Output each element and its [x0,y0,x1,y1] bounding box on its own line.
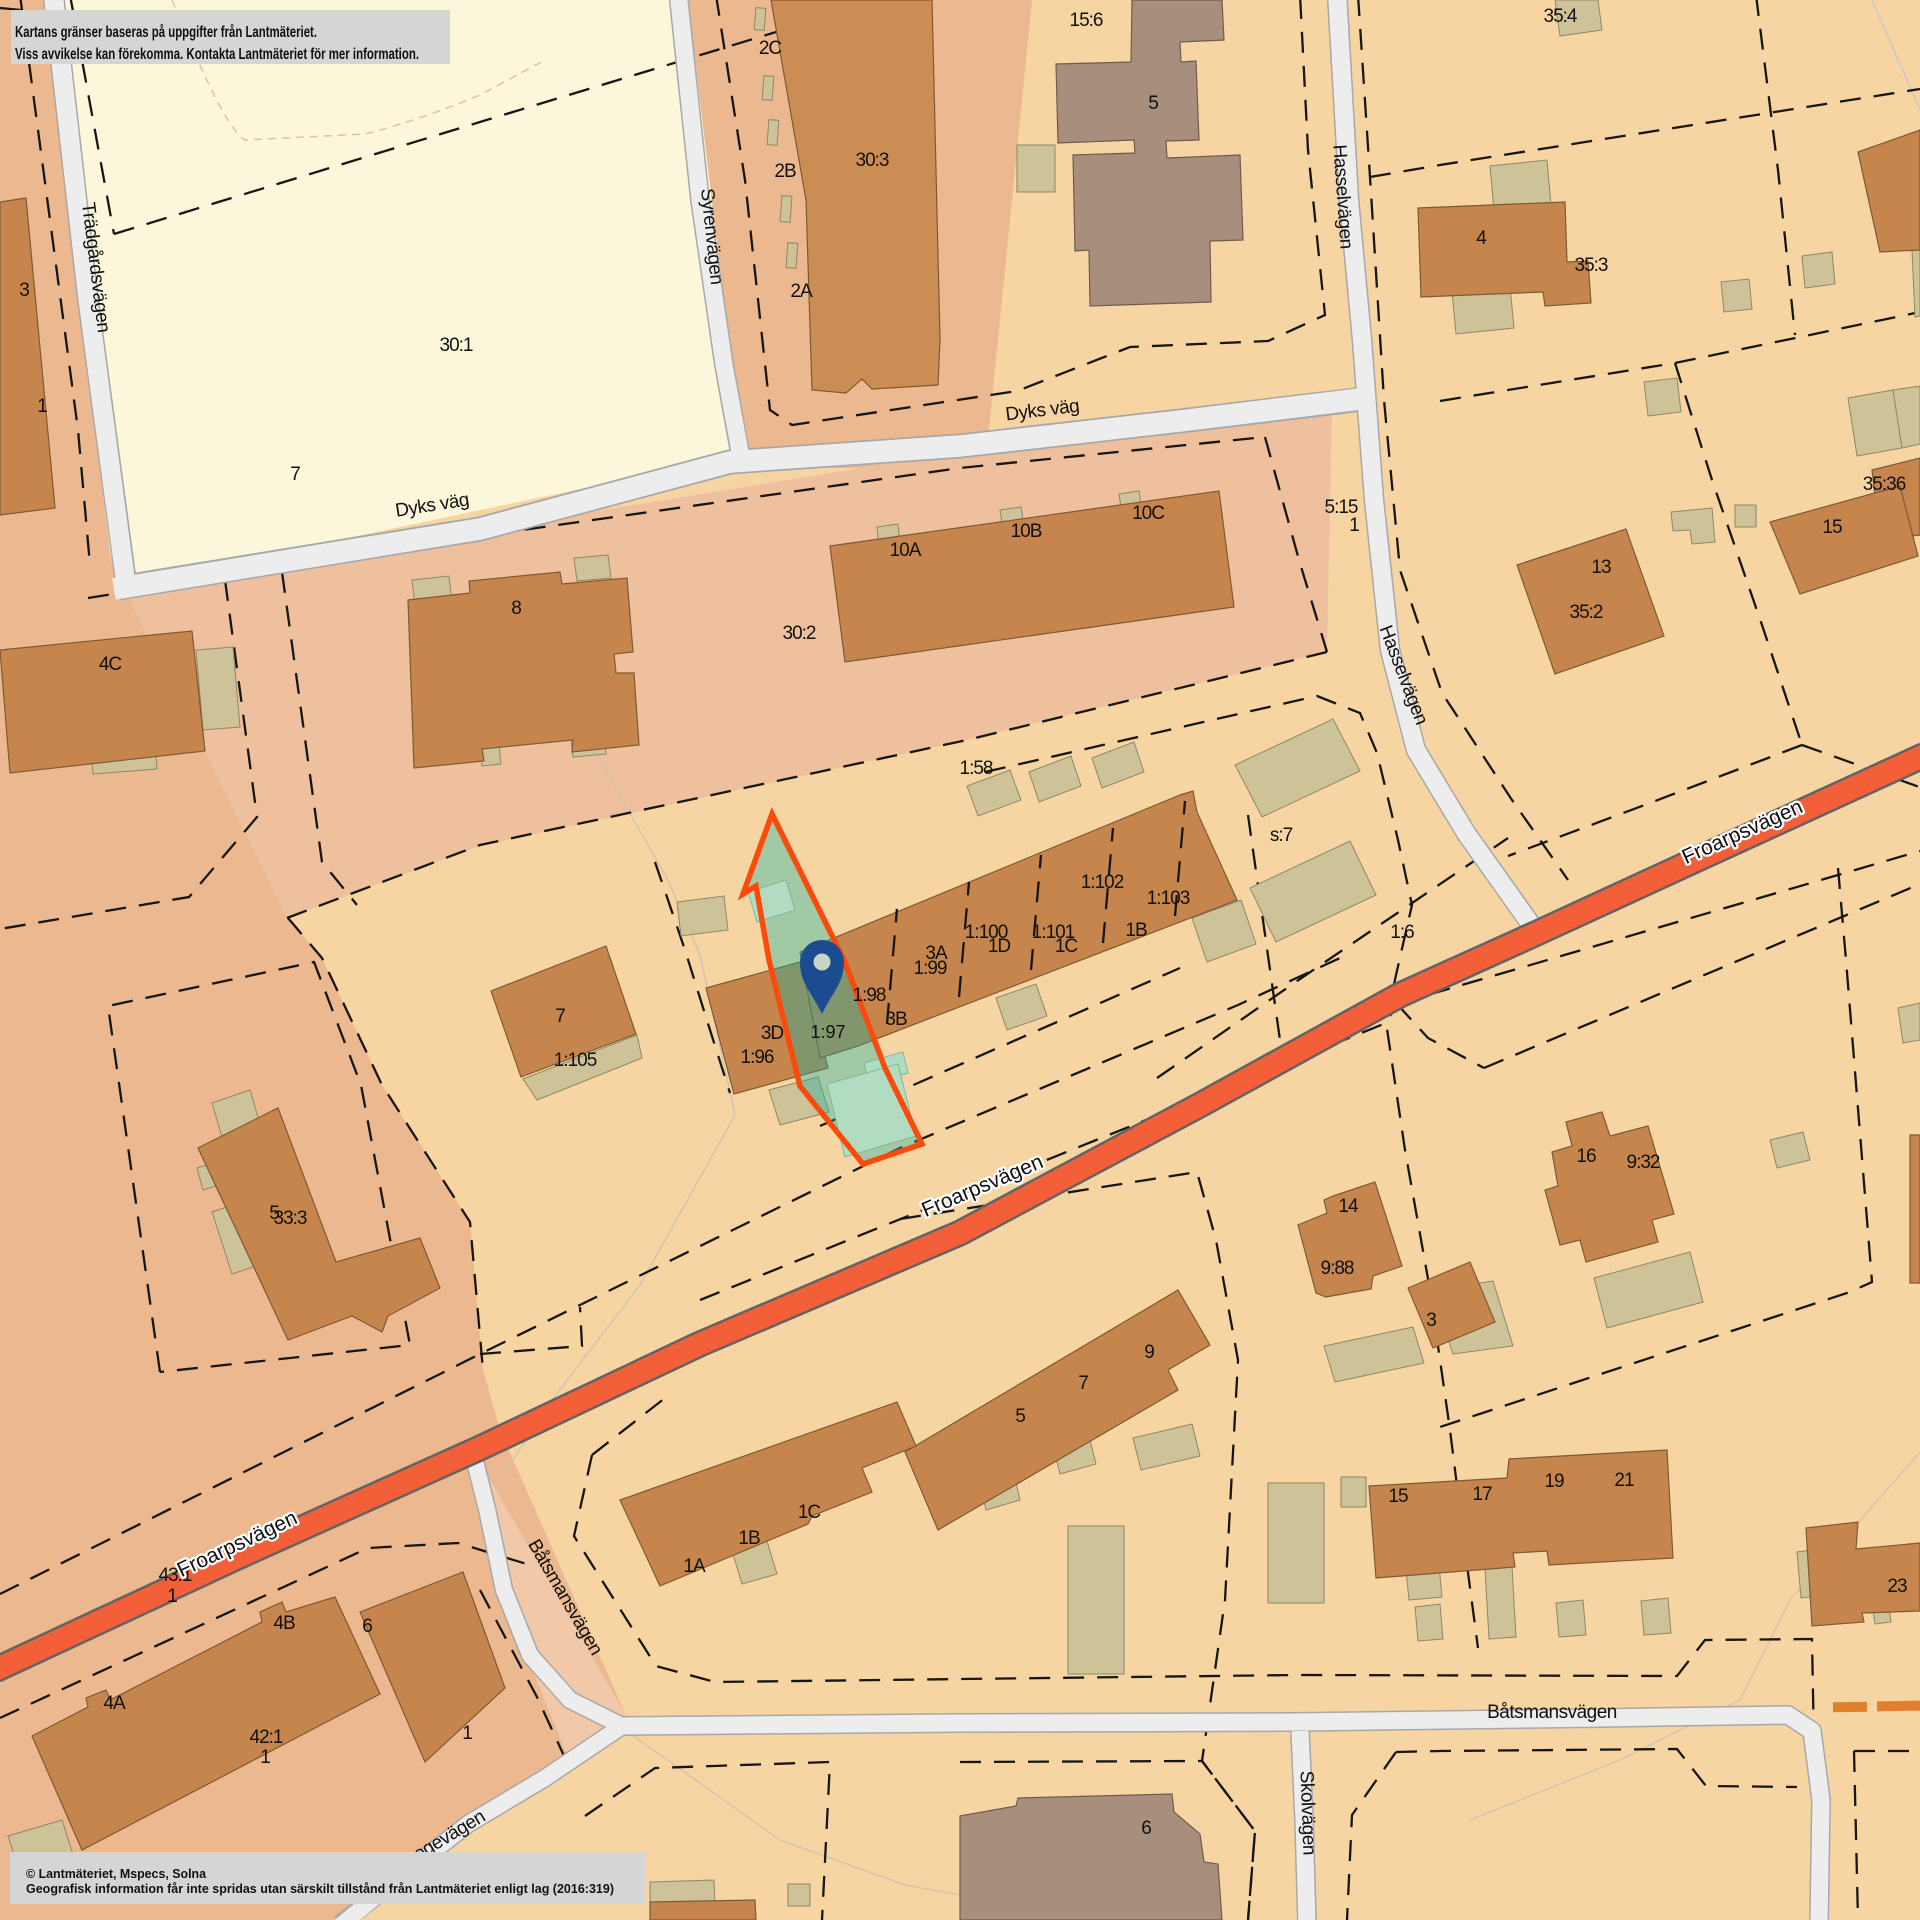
svg-text:10B: 10B [1011,521,1042,542]
svg-text:Viss avvikelse kan förekomma.: Viss avvikelse kan förekomma. Kontakta L… [15,46,419,63]
svg-text:3: 3 [1426,1310,1436,1331]
svg-text:15: 15 [1388,1486,1408,1507]
svg-text:21: 21 [1614,1470,1634,1491]
svg-text:4B: 4B [273,1613,295,1634]
svg-text:9:88: 9:88 [1321,1258,1354,1279]
svg-text:19: 19 [1544,1471,1564,1492]
svg-text:10C: 10C [1132,503,1164,524]
svg-text:35:36: 35:36 [1863,474,1906,495]
svg-text:1:58: 1:58 [960,758,993,779]
svg-text:1B: 1B [1125,920,1147,941]
svg-text:3D: 3D [761,1023,784,1044]
svg-text:1:103: 1:103 [1147,888,1190,909]
svg-text:3B: 3B [885,1009,907,1030]
svg-text:1:97: 1:97 [810,1022,845,1042]
svg-text:15: 15 [1822,517,1842,538]
svg-text:Kartans gränser baseras på upp: Kartans gränser baseras på uppgifter frå… [15,23,317,41]
svg-text:35:4: 35:4 [1544,6,1578,27]
svg-text:30:1: 30:1 [440,335,473,356]
svg-text:1:96: 1:96 [741,1047,774,1068]
svg-text:1:102: 1:102 [1081,872,1124,893]
svg-text:16: 16 [1576,1146,1596,1167]
svg-text:1D: 1D [988,936,1011,957]
svg-text:4C: 4C [99,654,122,675]
svg-text:1A: 1A [683,1556,706,1577]
svg-text:1:105: 1:105 [554,1050,597,1071]
svg-text:23: 23 [1887,1576,1907,1597]
svg-text:1C: 1C [798,1502,821,1523]
svg-text:17: 17 [1472,1484,1492,1505]
svg-text:30:3: 30:3 [856,150,889,171]
svg-text:Skolvägen: Skolvägen [1296,1770,1320,1855]
svg-text:4: 4 [1476,228,1487,249]
svg-text:Geografisk information får int: Geografisk information får inte spridas … [26,1881,614,1896]
svg-text:13: 13 [1591,557,1611,578]
svg-text:8: 8 [511,598,521,619]
svg-text:6: 6 [1141,1818,1151,1839]
svg-text:© Lantmäteriet, Mspecs, Solna: © Lantmäteriet, Mspecs, Solna [26,1866,207,1881]
svg-text:5: 5 [1148,93,1158,114]
svg-text:1C: 1C [1055,936,1078,957]
svg-text:3A: 3A [925,943,948,964]
svg-text:1: 1 [260,1747,270,1768]
svg-text:s:7: s:7 [1270,825,1293,846]
svg-text:1: 1 [167,1586,177,1607]
svg-text:5: 5 [269,1203,279,1224]
svg-text:1B: 1B [738,1528,760,1549]
svg-text:10A: 10A [890,540,922,561]
svg-text:1: 1 [1349,515,1359,536]
svg-text:30:2: 30:2 [783,623,816,644]
svg-text:7: 7 [555,1006,565,1027]
svg-text:Båtsmansvägen: Båtsmansvägen [1487,1702,1617,1723]
svg-text:2A: 2A [790,281,813,302]
svg-text:7: 7 [290,464,300,485]
svg-text:2C: 2C [759,38,782,59]
svg-text:4A: 4A [103,1693,126,1714]
svg-text:35:3: 35:3 [1575,255,1608,276]
svg-text:1: 1 [462,1723,472,1744]
svg-text:7: 7 [1078,1373,1088,1394]
svg-text:15:6: 15:6 [1070,10,1103,31]
svg-text:3: 3 [19,280,29,301]
svg-text:35:2: 35:2 [1570,602,1603,623]
svg-text:42:1: 42:1 [250,1727,283,1748]
svg-text:1: 1 [37,396,47,417]
svg-text:1:6: 1:6 [1390,922,1414,943]
svg-text:9: 9 [1144,1342,1154,1363]
svg-text:5: 5 [1015,1406,1025,1427]
svg-text:6: 6 [362,1616,372,1637]
svg-text:9:32: 9:32 [1627,1152,1660,1173]
svg-text:1:98: 1:98 [853,985,886,1006]
svg-text:14: 14 [1338,1196,1359,1217]
svg-text:2B: 2B [774,161,796,182]
